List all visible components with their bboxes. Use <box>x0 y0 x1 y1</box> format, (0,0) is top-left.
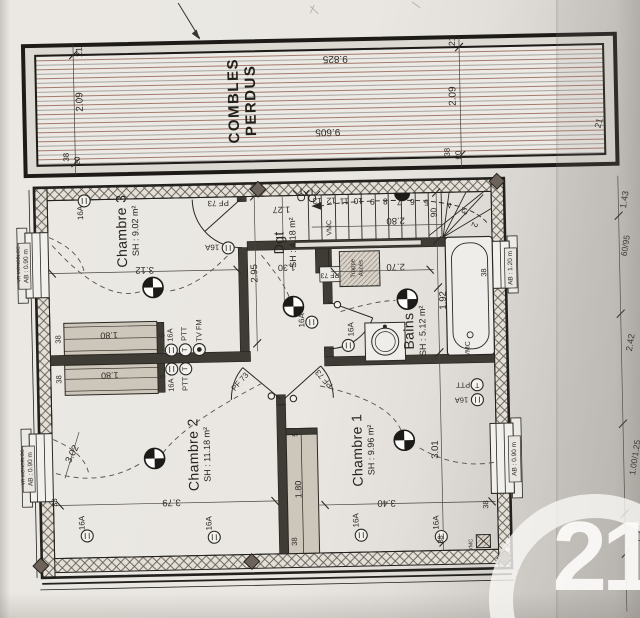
room-label-bains: Bains SH : 5.12 m² <box>400 305 428 356</box>
socket-16a-closet-bottom: 16A <box>166 378 175 392</box>
socket-16a-dgt: 16A <box>297 313 306 327</box>
dim-closet-180-bottom: 1.80 <box>101 370 119 380</box>
attic-label-line2: PERDUS <box>241 64 259 136</box>
door-tag-ch3: PF 73 <box>208 198 230 207</box>
room-area: SH : 4.18 m² <box>287 217 298 268</box>
dim-attic-width-top: 9.825 <box>323 53 348 65</box>
window-tag-ch2: AB : 0.90 m <box>27 452 35 486</box>
stair-step-11: 11 <box>340 196 349 206</box>
stair-step-12: 12 <box>326 196 336 206</box>
socket-16a-ch1-b: 16A <box>431 515 440 529</box>
attic-label: COMBLES PERDUS <box>225 57 260 143</box>
dim-attic-21-left: 21 <box>74 47 84 57</box>
dim-302: 3.02 <box>63 443 81 464</box>
door-tag-ch2: PF 73 <box>230 371 251 393</box>
vmc-stair: VMC <box>326 220 333 236</box>
socket-16a-ch2-b: 16A <box>204 516 213 530</box>
dim-90: 90 <box>428 208 438 218</box>
dim-attic-21-right: 21 <box>447 36 457 46</box>
room-label-chambre3: Chambre 3 SH : 9.02 m² <box>113 194 142 267</box>
vmc-bath: VMC <box>465 341 472 357</box>
stair-step-5: 5 <box>424 198 429 208</box>
dim-closet-180-ch1: 1.80 <box>293 481 303 499</box>
door-tag-ch1: PF 73 <box>313 368 334 390</box>
socket-ptt-ch1: PTT <box>456 380 470 389</box>
dim-wall-20-right: 20 <box>454 151 463 160</box>
socket-ptt-closet-top: PTT <box>179 327 188 341</box>
stair-step-9: 9 <box>370 197 375 207</box>
dim-5-c: 5 <box>291 432 300 436</box>
dim-attic-depth-right: 2.09 <box>447 86 458 106</box>
vmc-corner: VMC <box>468 539 474 551</box>
room-name: Dgt <box>270 217 287 268</box>
dim-38-f: 38 <box>481 500 490 509</box>
socket-16a-ch3-door: 16A <box>205 243 219 252</box>
room-label-dgt: Dgt SH : 4.18 m² <box>270 217 298 268</box>
window-shutter-ch3: VR MONOBLOC <box>17 246 23 282</box>
dim-38-b: 38 <box>54 375 63 384</box>
socket-16a-ch1-a: 16A <box>351 513 360 527</box>
room-area: SH : 9.96 m² <box>365 413 377 486</box>
ptt-t-glyph-a: T <box>182 348 189 352</box>
room-label-chambre1: Chambre 1 SH : 9.96 m² <box>348 413 377 486</box>
ptt-t-glyph-b: T <box>182 367 189 371</box>
room-label-chambre2: Chambre 2 SH : 11.18 m² <box>184 418 213 491</box>
stair-step-8: 8 <box>383 197 388 207</box>
dim-38-g: 38 <box>479 268 488 277</box>
socket-16a-ch1-c: 16A <box>455 395 469 404</box>
socket-16a-closet-top: 16A <box>165 328 174 342</box>
dim-192: 1.92 <box>438 291 449 310</box>
socket-16a-bains: 16A <box>346 322 355 336</box>
room-area: SH : 11.18 m² <box>201 418 213 491</box>
window-tag-ch3: AB : 0.90 m <box>23 249 31 283</box>
dim-270: 2.70 <box>386 261 405 272</box>
dim-38-a: 38 <box>54 335 63 344</box>
window-shutter-ch2: VR MONOBLOC <box>21 449 27 485</box>
socket-16a-ch2-a: 16A <box>77 516 86 530</box>
socket-16a-ch3-nw: 16A <box>76 206 85 220</box>
ptt-t-glyph-c: T <box>475 381 479 388</box>
plan-photo-page: 9.8259.6052.092.092121213820382013121110… <box>0 0 640 618</box>
room-name: Bains <box>400 306 417 357</box>
dim-38-c: 38 <box>50 498 59 507</box>
dim-295: 2.95 <box>249 264 260 283</box>
dim-127: 1.27 <box>273 205 291 215</box>
dim-wall-38-right: 38 <box>443 148 452 157</box>
socket-tvfm-closet-top: TV FM <box>194 319 203 342</box>
room-name: Chambre 1 <box>348 414 366 487</box>
dim-301: 3.01 <box>430 440 441 459</box>
dim-attic-width-bottom: 9.605 <box>315 126 340 138</box>
hatch-label-line2: Accès <box>358 260 364 276</box>
stair-step-2: 2 <box>469 221 480 229</box>
paper-shadow-left <box>0 0 10 618</box>
stair-step-6: 6 <box>410 197 415 207</box>
century21-watermark-number: 21 <box>522 500 640 613</box>
dim-wall-20-left: 20 <box>73 156 82 165</box>
dim-closet-180-top: 1.80 <box>100 330 118 340</box>
stair-step-7: 7 <box>397 197 402 207</box>
dim-38-d: 38 <box>290 537 299 546</box>
dim-wall-38-left: 38 <box>62 153 71 162</box>
stair-step-4: 4 <box>445 200 453 211</box>
room-name: Chambre 2 <box>184 418 202 491</box>
dim-340: 3.40 <box>377 497 396 508</box>
room-area: SH : 5.12 m² <box>417 305 428 356</box>
stair-step-13: 13 <box>312 196 322 206</box>
stair-step-3: 3 <box>459 207 469 217</box>
hatch-label-line1: Trappe <box>350 259 356 278</box>
dim-38-e: 38 <box>436 535 445 544</box>
window-tag-bains: AB : 1.20 m <box>507 251 515 285</box>
window-tag-ch1: AB : 0.90 m <box>511 442 519 476</box>
dim-280: 2.80 <box>386 215 405 226</box>
socket-ptt-closet-bottom: PTT <box>180 377 189 391</box>
door-tag-dgt: PF 73 <box>320 271 339 278</box>
stair-step-10: 10 <box>353 196 363 206</box>
dim-379: 3.79 <box>162 496 181 507</box>
room-name: Chambre 3 <box>113 195 131 268</box>
room-area: SH : 9.02 m² <box>130 194 142 267</box>
dim-attic-depth-left: 2.09 <box>74 92 85 112</box>
attic-label-line1: COMBLES <box>224 58 243 144</box>
